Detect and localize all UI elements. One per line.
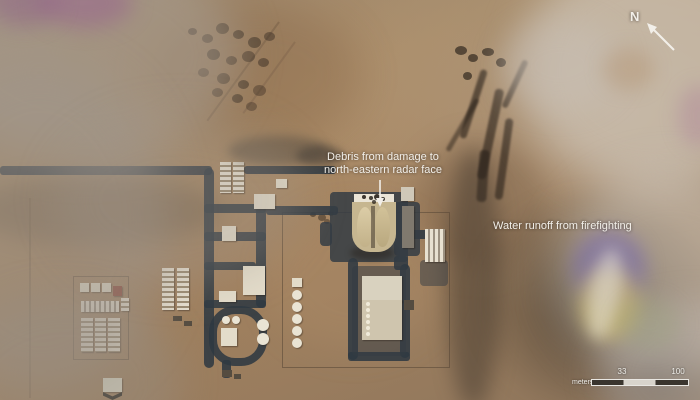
warehouse bbox=[177, 268, 189, 310]
south-building bbox=[103, 378, 122, 392]
burn-blob bbox=[482, 48, 494, 56]
small-structure bbox=[234, 374, 241, 379]
storage-tank bbox=[222, 316, 230, 324]
purple-tint bbox=[0, 0, 58, 26]
east-apron bbox=[420, 260, 448, 286]
small-building bbox=[276, 179, 287, 188]
storage-tank bbox=[232, 316, 240, 324]
satellite-image: Debris from damage to north-eastern rada… bbox=[0, 0, 700, 400]
desert-track bbox=[29, 198, 31, 398]
radar-pad-notch bbox=[320, 222, 332, 246]
scale-bar-segments bbox=[591, 379, 689, 386]
small-building bbox=[401, 187, 414, 201]
complex-building-north bbox=[362, 276, 402, 302]
gate-building bbox=[254, 194, 275, 209]
scale-bar: meters 33 100 bbox=[572, 368, 696, 390]
lens-flare-purple bbox=[572, 230, 646, 304]
chevron-marking bbox=[103, 392, 122, 400]
debris-marks bbox=[362, 195, 366, 199]
storage-tank bbox=[292, 302, 302, 312]
support-building bbox=[402, 206, 414, 248]
burn-blob bbox=[455, 46, 467, 55]
burn-blob bbox=[463, 72, 472, 80]
runoff-streak bbox=[501, 59, 528, 109]
vehicle bbox=[173, 316, 182, 321]
ground-shadow bbox=[0, 175, 220, 245]
lens-flare-yellow bbox=[578, 268, 640, 340]
runoff-annotation: Water runoff from firefighting bbox=[493, 220, 632, 233]
annex bbox=[404, 300, 414, 310]
barracks-row bbox=[108, 318, 120, 352]
road-to-radar bbox=[266, 206, 338, 215]
debris-annotation: Debris from damage to north-eastern rada… bbox=[302, 151, 464, 177]
desert-patch bbox=[150, 5, 360, 145]
debris-pointer-arrow-icon bbox=[372, 180, 388, 208]
barracks-hut bbox=[91, 283, 100, 292]
smoke-cloud bbox=[555, 170, 700, 380]
scorch-marks bbox=[188, 28, 197, 35]
vehicle bbox=[184, 321, 192, 326]
warehouse bbox=[162, 268, 174, 310]
barracks-small-building bbox=[121, 298, 129, 311]
storage-tank bbox=[257, 333, 269, 345]
shelter-row bbox=[233, 162, 244, 193]
pump-house bbox=[221, 328, 237, 346]
scale-mid-value: 33 bbox=[614, 367, 630, 376]
lens-flare-amber bbox=[602, 48, 654, 90]
red-roof-building bbox=[113, 286, 122, 296]
scale-max-value: 100 bbox=[667, 367, 689, 376]
barracks-row bbox=[95, 318, 106, 352]
lens-flare-rose bbox=[678, 85, 700, 147]
east-building bbox=[425, 229, 445, 262]
radar-face-gap bbox=[371, 206, 375, 248]
barracks-row bbox=[81, 318, 93, 352]
complex-building-south bbox=[362, 300, 402, 340]
entry-road bbox=[0, 166, 212, 175]
storage-tank bbox=[292, 314, 302, 324]
shelter-row bbox=[220, 162, 231, 193]
roof-vents bbox=[366, 302, 370, 306]
burn-blob bbox=[468, 54, 478, 62]
barracks-hut bbox=[80, 283, 89, 292]
tank-farm-shed bbox=[292, 278, 302, 287]
barracks-long-building bbox=[81, 301, 119, 312]
barracks-hut bbox=[102, 283, 111, 292]
small-building bbox=[222, 226, 236, 241]
lens-flare-white bbox=[582, 246, 628, 342]
storage-tank bbox=[257, 319, 269, 331]
north-arrow-icon bbox=[640, 20, 680, 54]
storage-tank bbox=[292, 326, 302, 336]
smoke-cloud bbox=[500, 20, 620, 110]
radar-face-east bbox=[375, 207, 390, 247]
burn-blob bbox=[496, 58, 506, 67]
wet-ground-band bbox=[446, 150, 501, 400]
lens-flare-green bbox=[618, 298, 680, 350]
storage-tank bbox=[292, 290, 302, 300]
small-structure bbox=[222, 370, 232, 377]
small-building bbox=[219, 291, 236, 302]
large-building bbox=[243, 266, 265, 295]
north-label: N bbox=[630, 10, 639, 23]
purple-tint bbox=[38, 0, 133, 28]
storage-tank bbox=[292, 338, 302, 348]
